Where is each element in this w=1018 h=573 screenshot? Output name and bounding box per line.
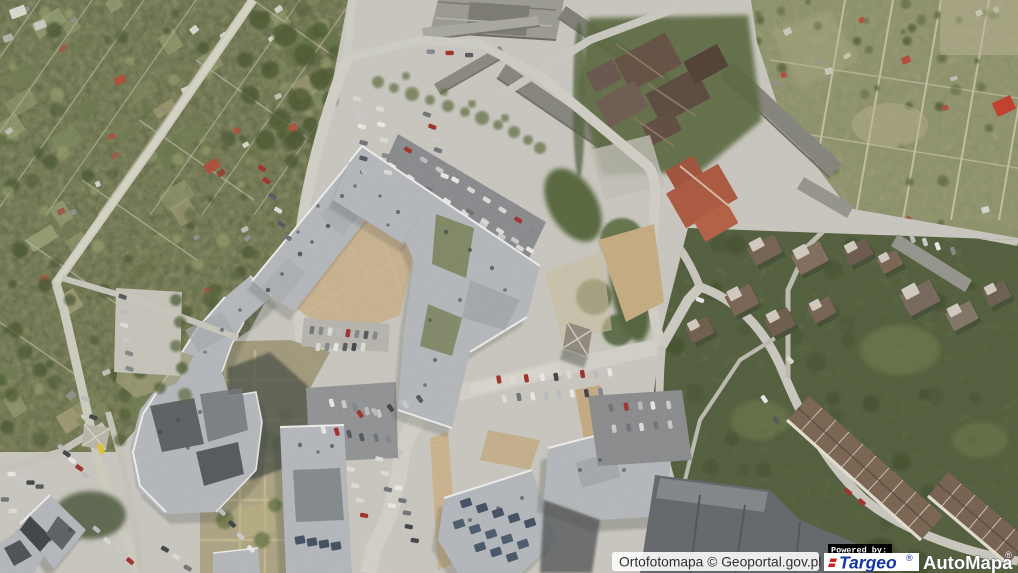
svg-text:Ortofotomapa © Geoportal.gov.p: Ortofotomapa © Geoportal.gov.pl [619,555,821,570]
svg-text:AutoMapa: AutoMapa [923,552,1013,573]
svg-text:®: ® [906,553,913,563]
svg-text:Targeo: Targeo [839,553,897,573]
svg-text:®: ® [1005,550,1012,561]
